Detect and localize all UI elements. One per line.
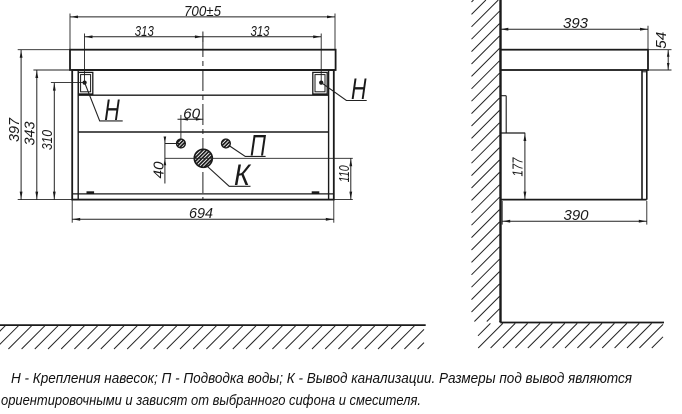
svg-text:397: 397 [6,117,23,142]
svg-text:700±5: 700±5 [184,3,222,20]
svg-text:343: 343 [21,121,38,146]
svg-text:Н: Н [351,73,367,106]
svg-text:110: 110 [336,165,353,182]
svg-text:393: 393 [563,15,589,32]
svg-text:К: К [234,159,252,192]
svg-text:390: 390 [564,207,590,224]
svg-text:310: 310 [39,129,56,150]
svg-text:694: 694 [189,205,213,222]
svg-text:313: 313 [135,23,154,40]
svg-text:ориентировочными и зависят от: ориентировочными и зависят от выбранного… [1,393,421,409]
svg-text:Н - Крепления навесок; П - Под: Н - Крепления навесок; П - Подводка воды… [11,371,632,387]
svg-text:40: 40 [150,161,167,179]
svg-text:177: 177 [510,157,527,176]
svg-text:60: 60 [183,105,201,122]
svg-text:313: 313 [251,23,270,40]
svg-text:54: 54 [653,32,670,49]
svg-text:П: П [250,130,266,163]
svg-text:Н: Н [104,94,120,127]
